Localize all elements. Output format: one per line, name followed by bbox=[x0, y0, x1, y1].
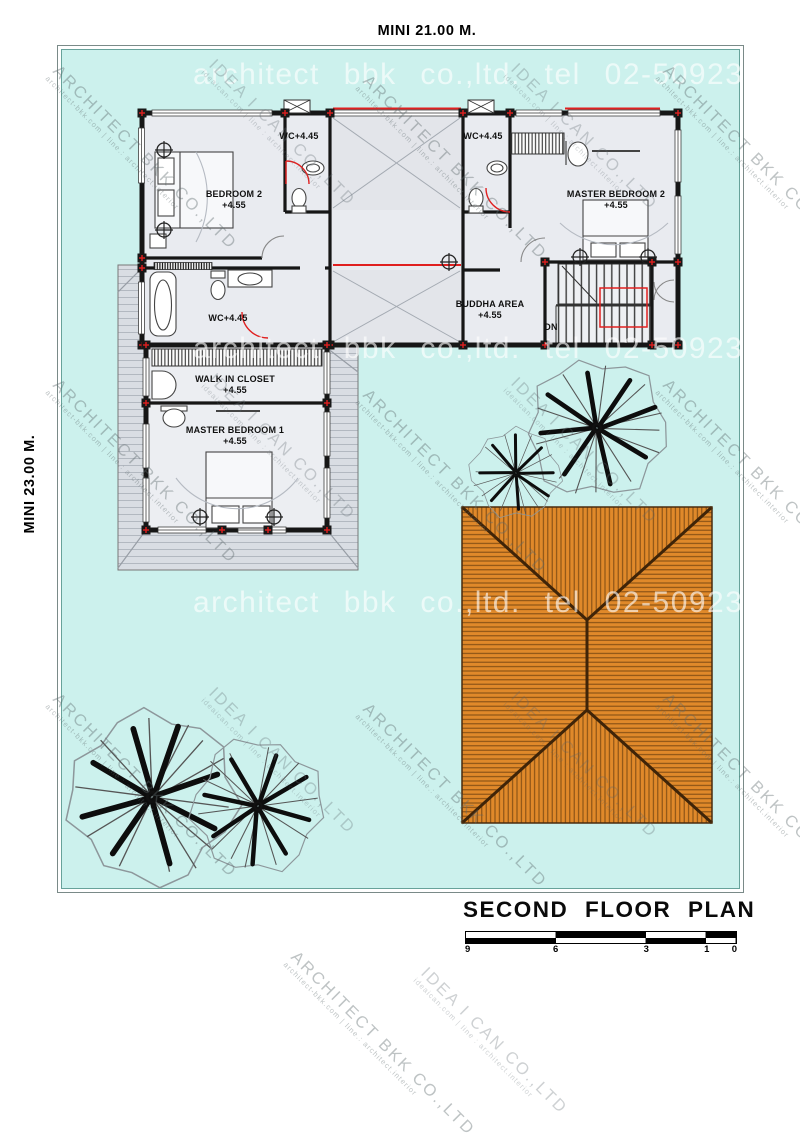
floor-plan-svg: BEDROOM 2 +4.55 WC+4.45 WC+4.45 MASTER B… bbox=[0, 0, 800, 1000]
room-label-wc-top-left: WC+4.45 bbox=[279, 131, 318, 141]
scale-mark: 3 bbox=[644, 944, 649, 955]
scale-mark: 1 bbox=[704, 944, 709, 955]
scale-bar bbox=[465, 931, 737, 944]
room-label-buddha-area: BUDDHA AREA bbox=[456, 299, 525, 309]
staircase bbox=[556, 264, 652, 344]
hip-roof bbox=[462, 507, 712, 823]
tree-symbol bbox=[164, 714, 348, 899]
room-label-walk-in-closet: WALK IN CLOSET bbox=[195, 374, 275, 384]
vent-band bbox=[154, 263, 212, 270]
room-level-bedroom2: +4.55 bbox=[222, 200, 246, 210]
scale-mark: 6 bbox=[553, 944, 558, 955]
top-dimension-label: MINI 21.00 M. bbox=[342, 23, 512, 39]
drawing-title: SECOND FLOOR PLAN bbox=[463, 897, 739, 923]
room-label-wc-top-right: WC+4.45 bbox=[463, 131, 502, 141]
scale-bar-labels: 9 6 3 1 0 bbox=[465, 944, 737, 956]
scale-mark: 0 bbox=[732, 944, 737, 955]
room-label-wc-middle: WC+4.45 bbox=[208, 313, 247, 323]
stairs-dn-label: DN bbox=[544, 322, 557, 332]
left-dimension-label: MINI 23.00 M. bbox=[22, 409, 38, 559]
room-label-master-bedroom1: MASTER BEDROOM 1 bbox=[186, 425, 284, 435]
room-level-walk-in-closet: +4.55 bbox=[223, 385, 247, 395]
closet-wardrobe bbox=[152, 349, 322, 366]
scale-mark: 9 bbox=[465, 944, 470, 955]
room-label-bedroom2: BEDROOM 2 bbox=[206, 189, 262, 199]
tree-symbol bbox=[37, 681, 272, 914]
room-level-master-bedroom2: +4.55 bbox=[604, 200, 628, 210]
second-floor-body: BEDROOM 2 +4.55 WC+4.45 WC+4.45 MASTER B… bbox=[138, 100, 683, 535]
room-level-buddha-area: +4.55 bbox=[478, 310, 502, 320]
room-level-master-bedroom1: +4.55 bbox=[223, 436, 247, 446]
room-label-master-bedroom2: MASTER BEDROOM 2 bbox=[567, 189, 665, 199]
mb2-wardrobe bbox=[511, 133, 564, 154]
